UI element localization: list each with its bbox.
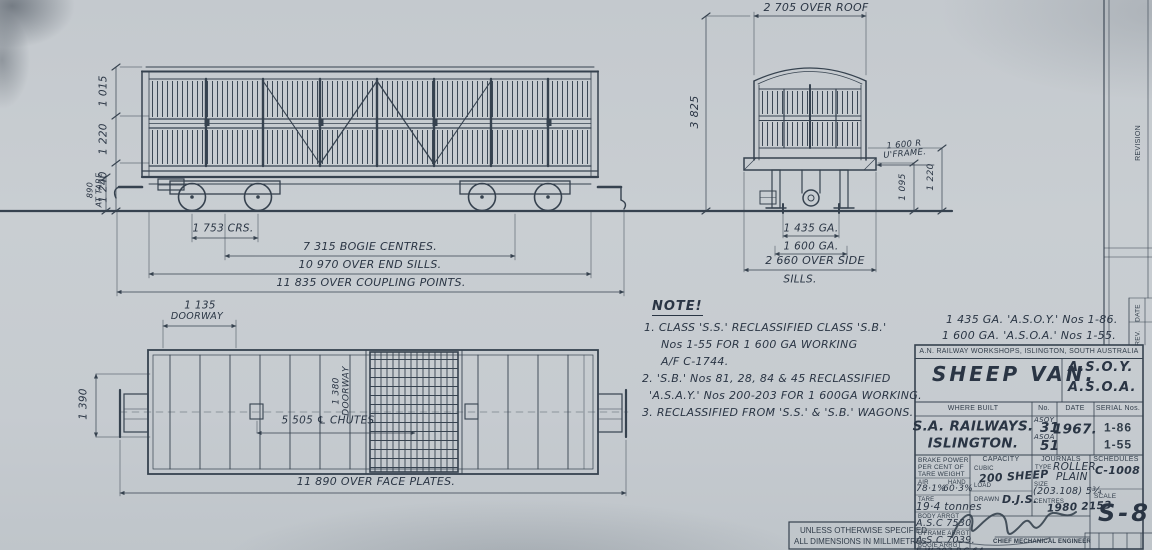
note-line: 1. CLASS 'S.S.' RECLASSIFIED CLASS 'S.B.… bbox=[644, 322, 886, 334]
spec-note-line2: ALL DIMENSIONS IN MILLIMETRES bbox=[794, 538, 927, 547]
plan-view-drawing bbox=[120, 350, 628, 474]
drawn-label: DRAWN bbox=[974, 496, 999, 503]
serial-header: SERIAL Nos. bbox=[1096, 405, 1140, 413]
date-value: 1967. bbox=[1053, 423, 1097, 438]
dim-end-inner: 1 095 bbox=[899, 173, 909, 200]
end-elevation-drawing bbox=[744, 68, 876, 213]
dim-coupling-points: 11 835 OVER COUPLING POINTS. bbox=[276, 277, 465, 289]
dim-side-height-mid: 1 220 bbox=[98, 123, 109, 155]
note-line: A/F C-1744. bbox=[661, 356, 729, 368]
brake-power-label1: BRAKE POWER bbox=[918, 457, 969, 464]
journal-type-value2: PLAIN bbox=[1056, 472, 1088, 483]
brake-power-label2: PER CENT OF bbox=[918, 464, 964, 471]
number-value2: 51 bbox=[1040, 439, 1059, 454]
blueprint-sheet: 1 015 1 220 1 240 890 AT TARE 1 753 CRS.… bbox=[0, 0, 1152, 550]
load-label: LOAD bbox=[974, 483, 991, 489]
dim-over-roof: 2 705 OVER ROOF bbox=[763, 2, 868, 14]
dim-chute-centres: 5 505 ℄ CHUTES bbox=[282, 415, 375, 426]
serial-value2: 1-55 bbox=[1104, 439, 1132, 452]
note-line: 'A.S.A.Y.' Nos 200-203 FOR 1 600GA WORKI… bbox=[649, 390, 922, 402]
tare-value: 19·4 tonnes bbox=[916, 502, 982, 513]
dim-end-width: 1 390 bbox=[78, 388, 89, 420]
dim-gauge-1435: 1 435 GA. bbox=[784, 223, 839, 234]
hand-value: 60·3% bbox=[943, 485, 973, 495]
plan-dimension-lines bbox=[96, 320, 626, 496]
revision-strip bbox=[1104, 0, 1152, 345]
serial-value1: 1-86 bbox=[1104, 422, 1132, 435]
dim-over-side-sills-2: SILLS. bbox=[783, 274, 816, 285]
dim-side-doorway: 1 380 DOORWAY bbox=[332, 366, 351, 416]
dim-end-height: 3 825 bbox=[689, 96, 701, 129]
number-header: No. bbox=[1038, 405, 1050, 413]
class-code-broad: A.S.O.A. bbox=[1068, 381, 1137, 395]
where-built-value2: ISLINGTON. bbox=[928, 437, 1019, 452]
dim-gauge-1600: 1 600 GA. bbox=[784, 241, 839, 252]
air-value: 78·1% bbox=[916, 485, 946, 495]
dim-face-plates: 11 890 OVER FACE PLATES. bbox=[297, 476, 455, 488]
dim-over-side-sills: 2 660 OVER SIDE bbox=[765, 255, 864, 267]
workshop-name: A.N. RAILWAY WORKSHOPS, ISLINGTON, SOUTH… bbox=[919, 348, 1138, 356]
class-code-narrow: A.S.O.Y. bbox=[1068, 361, 1133, 375]
engineer-title: CHIEF MECHANICAL ENGINEER bbox=[993, 539, 1091, 545]
journal-type-label: TYPE bbox=[1035, 465, 1051, 471]
schedules-header: SCHEDULES bbox=[1093, 456, 1139, 464]
gauge-note-line1: 1 435 GA. 'A.S.O.Y.' Nos 1-86. bbox=[946, 314, 1118, 326]
revision-rev-label: REV. bbox=[1134, 330, 1141, 345]
dim-side-height-top: 1 015 bbox=[98, 75, 109, 107]
dim-uframe-radius: 1 600 R U'FRAME. bbox=[882, 139, 926, 161]
side-elevation-drawing bbox=[115, 67, 626, 211]
schedules-value: C-1008 bbox=[1095, 465, 1140, 477]
dim-bogie-centres: 7 315 BOGIE CENTRES. bbox=[303, 241, 437, 253]
where-built-header: WHERE BUILT bbox=[948, 405, 999, 413]
note-line: Nos 1-55 FOR 1 600 GA WORKING bbox=[661, 339, 857, 351]
revision-date-label: DATE bbox=[1134, 304, 1141, 322]
capacity-header: CAPACITY bbox=[983, 456, 1020, 464]
dim-end-doorway-label: DOORWAY bbox=[171, 312, 223, 322]
where-built-value1: S.A. RAILWAYS. bbox=[913, 420, 1034, 435]
revision-column-label: REVISION bbox=[1135, 125, 1143, 161]
spec-note-line1: UNLESS OTHERWISE SPECIFIED bbox=[800, 527, 927, 536]
brake-power-label3: TARE WEIGHT bbox=[918, 471, 965, 478]
journal-size-value: (203.108) 5¾ bbox=[1033, 487, 1102, 497]
dim-tare-height: 890 AT TARE bbox=[86, 173, 103, 208]
dim-end-outer: 1 220 bbox=[927, 163, 937, 190]
gauge-note-line2: 1 600 GA. 'A.S.O.A.' Nos 1-55. bbox=[942, 330, 1116, 342]
note-heading: NOTE! bbox=[652, 300, 703, 316]
dim-side-doorway-label: DOORWAY bbox=[342, 366, 352, 416]
dim-wheel-centres: 1 753 CRS. bbox=[192, 223, 253, 234]
date-header: DATE bbox=[1065, 405, 1084, 413]
drawing-number: S-8. bbox=[1098, 501, 1152, 527]
note-line: 3. RECLASSIFIED FROM 'S.S.' & 'S.B.' WAG… bbox=[642, 407, 913, 419]
dim-tare-label: AT TARE bbox=[95, 173, 104, 208]
dim-over-end-sills: 10 970 OVER END SILLS. bbox=[299, 259, 442, 271]
note-line: 2. 'S.B.' Nos 81, 28, 84 & 45 RECLASSIFI… bbox=[642, 373, 891, 385]
